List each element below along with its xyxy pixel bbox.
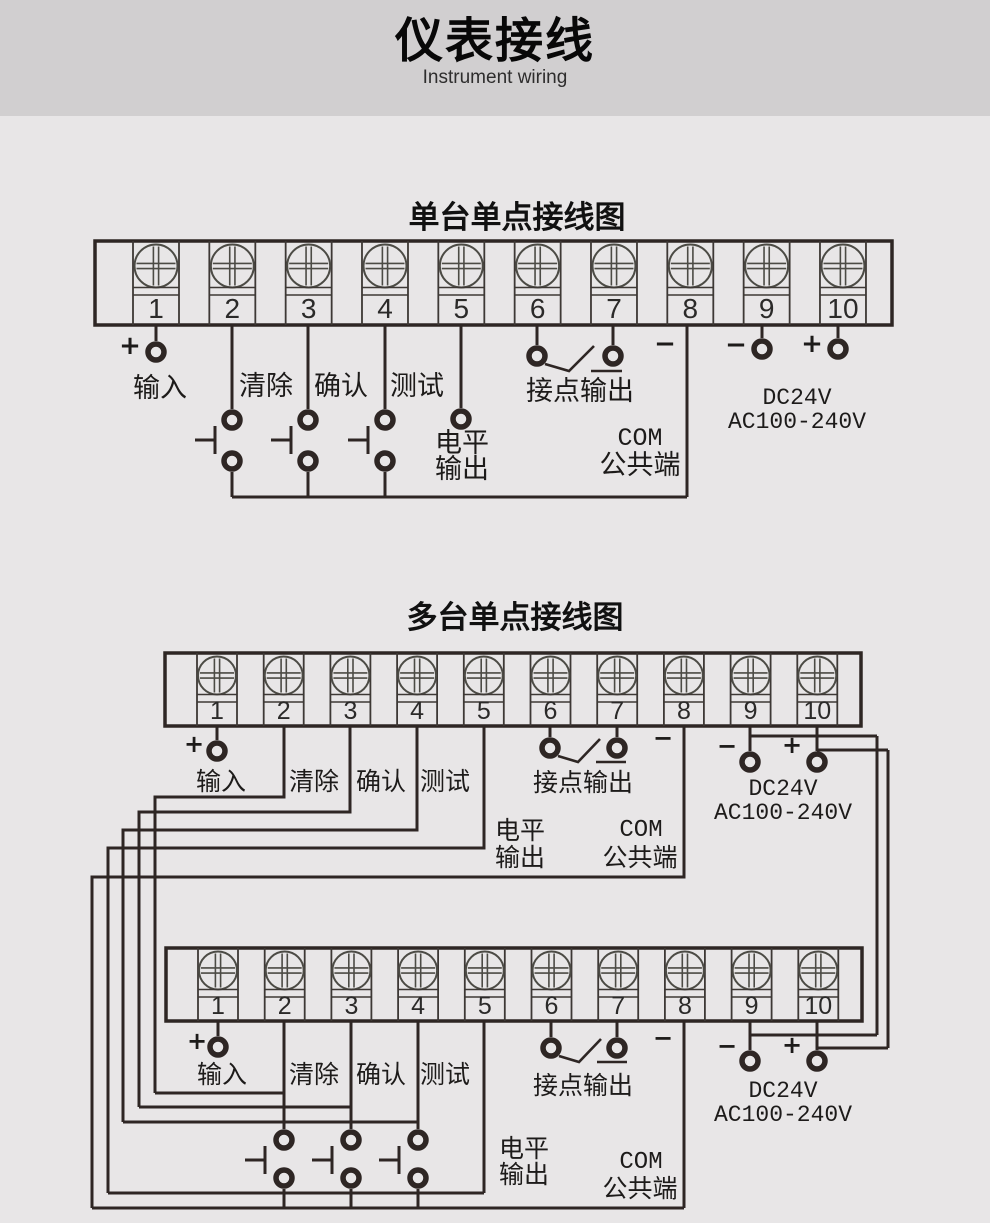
screw-cross-icon (467, 659, 501, 693)
screw-icon (198, 657, 236, 695)
power-ac-label: AC100-240V (728, 409, 866, 435)
screw-cross-icon (594, 247, 633, 286)
screw-icon (399, 952, 437, 990)
terminal-number: 9 (745, 992, 759, 1020)
screw-cross-icon (468, 954, 502, 988)
screw-cross-icon (518, 247, 557, 286)
terminal-ring (276, 1132, 292, 1148)
terminal-ring (830, 341, 846, 357)
screw-cross-icon (671, 247, 710, 286)
power-ac-label: AC100-240V (714, 1102, 852, 1128)
clear-label: 清除 (239, 371, 293, 401)
screw-cross-icon (734, 659, 768, 693)
terminal-number: 5 (454, 293, 470, 324)
confirm-label: 确认 (356, 1061, 406, 1089)
terminal-number: 6 (544, 697, 558, 725)
screw-icon (199, 952, 237, 990)
clear-label: 清除 (289, 768, 339, 796)
com-minus-sign: − (653, 724, 673, 752)
terminal-ring (529, 348, 545, 364)
terminal-number: 7 (611, 992, 625, 1020)
screw-cross-icon (823, 247, 862, 286)
level-output-label-1: 电平 (495, 817, 545, 845)
power-minus-sign: − (717, 732, 737, 760)
screw-cross-icon (213, 247, 252, 286)
level-output-label-2: 输出 (435, 454, 489, 484)
screw-icon (135, 245, 178, 288)
screw-icon (745, 245, 788, 288)
power-plus-sign: + (801, 329, 823, 359)
confirm-label: 确认 (314, 371, 368, 401)
input-label: 输入 (196, 768, 246, 796)
screw-icon (332, 952, 370, 990)
screw-icon (331, 657, 369, 695)
terminal-ring (343, 1132, 359, 1148)
screw-icon (265, 657, 303, 695)
terminal-number: 6 (545, 992, 559, 1020)
diagram-multi: 多台单点接线图 12345678910 + 输入 清除 确认 测试 电平 输出 … (92, 600, 888, 1208)
terminal-ring (343, 1170, 359, 1186)
screw-cross-icon (667, 659, 701, 693)
screw-cross-icon (535, 954, 569, 988)
terminal-ring (809, 754, 825, 770)
terminal-ring (209, 743, 225, 759)
terminal-number: 8 (678, 992, 692, 1020)
power-dc-label: DC24V (762, 385, 831, 411)
terminal-ring (377, 412, 393, 428)
terminal-ring (742, 754, 758, 770)
screw-icon (211, 245, 254, 288)
terminal-number: 10 (827, 293, 858, 324)
screw-cross-icon (735, 954, 769, 988)
screw-cross-icon (601, 954, 635, 988)
terminal-number: 2 (277, 697, 291, 725)
test-label: 测试 (420, 1061, 470, 1089)
screw-icon (732, 657, 770, 695)
terminal-number: 8 (683, 293, 699, 324)
terminal-ring (224, 453, 240, 469)
screw-icon (733, 952, 771, 990)
contact-output-label: 接点输出 (526, 376, 634, 406)
common-terminal-label: 公共端 (600, 450, 681, 480)
screw-cross-icon (668, 954, 702, 988)
input-plus-sign: + (184, 730, 204, 758)
level-output-label-2: 输出 (499, 1161, 549, 1189)
screw-cross-icon (747, 247, 786, 286)
clear-label: 清除 (289, 1061, 339, 1089)
screw-icon (533, 952, 571, 990)
terminal-ring (609, 1040, 625, 1056)
diagram-single: 单台单点接线图 12345678910 + (95, 200, 892, 497)
screw-icon (287, 245, 330, 288)
wiring-diagrams: 单台单点接线图 12345678910 + (0, 0, 990, 1223)
screw-cross-icon (201, 954, 235, 988)
diagram-single-title: 单台单点接线图 (409, 200, 626, 235)
screw-icon (440, 245, 483, 288)
level-output-label-1: 电平 (499, 1135, 549, 1163)
terminal-ring (754, 341, 770, 357)
terminal-ring (300, 412, 316, 428)
terminal-ring (543, 1040, 559, 1056)
input-label: 输入 (197, 1061, 247, 1089)
screw-icon (666, 952, 704, 990)
screw-icon (665, 657, 703, 695)
terminal-block-multi-unit1: 12345678910 (165, 653, 861, 726)
power-dc-label: DC24V (748, 776, 817, 802)
terminal-number: 4 (410, 697, 424, 725)
com-minus-sign: − (654, 329, 676, 359)
level-output-label-2: 输出 (495, 844, 545, 872)
screw-icon (266, 952, 304, 990)
input-plus-sign: + (119, 331, 141, 361)
terminal-block-single: 12345678910 (95, 241, 892, 325)
terminal-number: 5 (478, 992, 492, 1020)
terminal-ring (300, 453, 316, 469)
page: 仪表接线 Instrument wiring 单台单点接线图 123456789… (0, 0, 990, 1223)
screw-icon (821, 245, 864, 288)
screw-cross-icon (400, 659, 434, 693)
terminal-ring (276, 1170, 292, 1186)
terminal-number: 9 (759, 293, 775, 324)
contact-output-label: 接点输出 (533, 769, 633, 797)
terminal-number: 4 (411, 992, 425, 1020)
terminal-ring (605, 348, 621, 364)
terminal-ring (542, 740, 558, 756)
screw-cross-icon (442, 247, 481, 286)
terminal-ring (224, 412, 240, 428)
diagram-multi-title: 多台单点接线图 (407, 600, 624, 635)
screw-cross-icon (401, 954, 435, 988)
screw-icon (466, 952, 504, 990)
terminal-number: 8 (677, 697, 691, 725)
terminal-number: 2 (278, 992, 292, 1020)
test-label: 测试 (420, 768, 470, 796)
terminal-number: 3 (343, 697, 357, 725)
screw-icon (363, 245, 406, 288)
input-plus-sign: + (187, 1027, 207, 1055)
screw-cross-icon (334, 954, 368, 988)
terminal-number: 9 (744, 697, 758, 725)
com-label: COM (619, 817, 662, 844)
terminal-number: 3 (344, 992, 358, 1020)
terminal-ring (210, 1039, 226, 1055)
common-terminal-label: 公共端 (602, 844, 677, 872)
com-label: COM (617, 424, 662, 453)
terminal-number: 1 (210, 697, 224, 725)
screw-cross-icon (333, 659, 367, 693)
screw-cross-icon (800, 659, 834, 693)
screw-cross-icon (200, 659, 234, 693)
terminal-block-multi-unit2: 12345678910 (166, 948, 862, 1021)
screw-icon (798, 657, 836, 695)
terminal-number: 3 (301, 293, 317, 324)
screw-icon (599, 952, 637, 990)
screw-icon (532, 657, 570, 695)
terminal-ring (453, 411, 469, 427)
terminal-number: 10 (803, 697, 831, 725)
screw-cross-icon (801, 954, 835, 988)
terminal-number: 1 (211, 992, 225, 1020)
terminal-ring (377, 453, 393, 469)
input-label: 输入 (133, 373, 187, 403)
terminal-number: 1 (148, 293, 164, 324)
terminal-number: 10 (804, 992, 832, 1020)
terminal-ring (148, 344, 164, 360)
screw-icon (669, 245, 712, 288)
test-label: 测试 (390, 371, 444, 401)
terminal-ring (609, 740, 625, 756)
terminal-number: 6 (530, 293, 546, 324)
screw-cross-icon (365, 247, 404, 286)
power-plus-sign: + (782, 1031, 802, 1059)
terminal-number: 2 (225, 293, 241, 324)
terminal-ring (809, 1053, 825, 1069)
screw-icon (516, 245, 559, 288)
screw-icon (398, 657, 436, 695)
screw-cross-icon (268, 954, 302, 988)
terminal-ring (410, 1132, 426, 1148)
screw-cross-icon (137, 247, 176, 286)
screw-icon (592, 245, 635, 288)
screw-icon (598, 657, 636, 695)
terminal-ring (742, 1053, 758, 1069)
screw-cross-icon (534, 659, 568, 693)
terminal-number: 5 (477, 697, 491, 725)
contact-output-label: 接点输出 (533, 1072, 633, 1100)
connection-rings-single (148, 341, 846, 469)
terminal-number: 7 (610, 697, 624, 725)
power-minus-sign: − (717, 1032, 737, 1060)
power-ac-label: AC100-240V (714, 800, 852, 826)
common-terminal-label: 公共端 (602, 1175, 677, 1203)
terminal-number: 4 (377, 293, 393, 324)
power-dc-label: DC24V (748, 1078, 817, 1104)
confirm-label: 确认 (356, 768, 406, 796)
screw-icon (799, 952, 837, 990)
terminal-number: 7 (606, 293, 622, 324)
screw-cross-icon (267, 659, 301, 693)
com-minus-sign: − (653, 1024, 673, 1052)
power-minus-sign: − (725, 330, 747, 360)
screw-cross-icon (289, 247, 328, 286)
power-plus-sign: + (782, 731, 802, 759)
screw-cross-icon (600, 659, 634, 693)
terminal-ring (410, 1170, 426, 1186)
screw-icon (465, 657, 503, 695)
com-label: COM (619, 1149, 662, 1176)
